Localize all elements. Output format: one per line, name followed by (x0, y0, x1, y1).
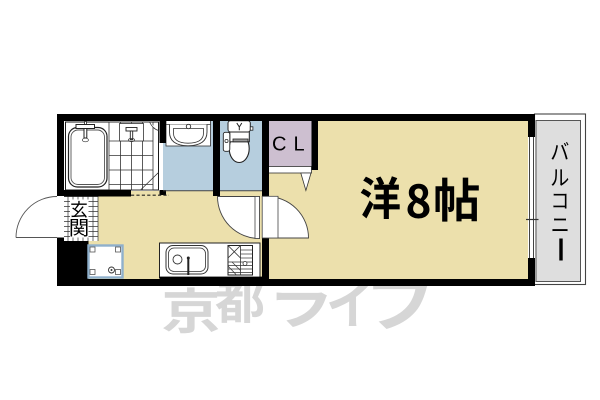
svg-text:CL: CL (272, 134, 312, 156)
